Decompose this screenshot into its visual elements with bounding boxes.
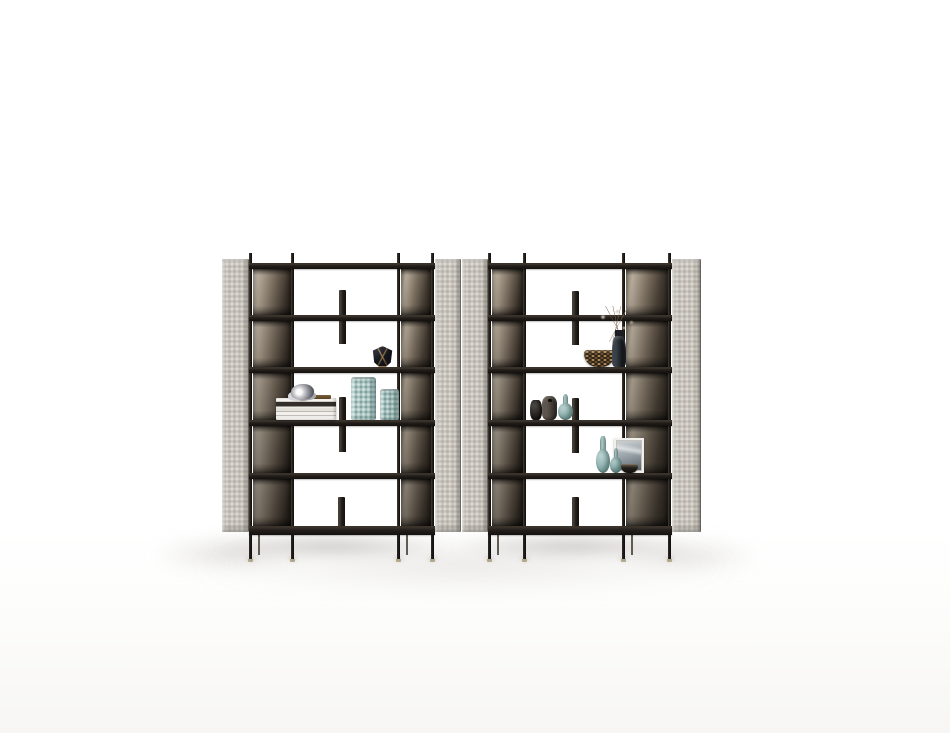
bookcase-left-post-4 [431, 253, 434, 535]
bookcase-right-back-leg-2 [631, 535, 633, 555]
bookcase-right-metal-back-left-row2 [492, 321, 523, 367]
decor-black-vase [530, 400, 542, 420]
bookcase-left-metal-back-left-row3 [253, 373, 291, 420]
bookcase-right-leg-3 [622, 535, 625, 559]
bookcase-left-shelf-2 [249, 315, 435, 321]
bookcase-left-leg-foot-1 [248, 559, 253, 562]
bookcase-right-post-1 [488, 253, 491, 535]
bookcase-left-metal-back-right-row1 [401, 269, 431, 315]
decor-teal-gourd-short [610, 448, 622, 473]
bookcase-right-metal-back-right-row4 [626, 426, 668, 473]
bookcase-left-post-2 [291, 253, 294, 535]
bookcase-right-metal-back-right-row5 [626, 479, 668, 526]
bookcase-right-metal-back-left-row5 [492, 479, 523, 526]
bookcase-left-metal-back-right-row5 [401, 479, 431, 526]
bookcase-right-post-2 [523, 253, 526, 535]
bookcase-left-metal-back-left-row4 [253, 426, 291, 473]
floor-shadow-4 [208, 534, 453, 558]
bookcase-left-metal-back-left-row1 [253, 269, 291, 315]
decor-chrome-ornament [291, 384, 314, 400]
bookcase-left-shelf-5 [249, 473, 435, 479]
bookcase-right-post-4 [668, 253, 671, 535]
bookcase-left-leg-4 [431, 535, 434, 559]
bookcase-right-side-panel-right [672, 259, 701, 532]
bookcase-left-leg-1 [249, 535, 252, 559]
bookcase-left-leg-foot-3 [396, 559, 401, 562]
bookcase-left-post-1 [249, 253, 252, 535]
bookcase-right-shelf-1 [488, 263, 672, 269]
bookcase-left-metal-back-right-row4 [401, 426, 431, 473]
bookcase-right-metal-back-left-row4 [492, 426, 523, 473]
bookcase-right-back-leg-1 [497, 535, 499, 555]
decor-stone-vessel [542, 396, 557, 420]
bookcase-left-leg-2 [291, 535, 294, 559]
decor-textured-vase-tall [351, 377, 376, 420]
bookcase-right-shelf-2 [488, 315, 672, 321]
bookcase-left-metal-back-right-row2 [401, 321, 431, 367]
floor-shadow-1 [190, 543, 740, 587]
bookcase-left-metal-back-right-row3 [401, 373, 431, 420]
bookcase-left-back-leg-2 [406, 535, 408, 555]
bookcase-right-side-panel-left [462, 259, 488, 532]
bookcase-right-leg-2 [523, 535, 526, 559]
bookcase-left-metal-back-left-row5 [253, 479, 291, 526]
bookcase-right-leg-foot-2 [522, 559, 527, 562]
decor-woven-bowl [584, 350, 615, 367]
bookcase-left-divider-fin-3 [338, 497, 345, 526]
bookcase-right-shelf-4 [488, 420, 672, 426]
bookcase-right-post-3 [622, 253, 625, 535]
bookcase-left-leg-foot-2 [290, 559, 295, 562]
bookcase-left-shelf-1 [249, 263, 435, 269]
floor-shadow-2 [150, 539, 310, 569]
bookcase-right-metal-back-left-row1 [492, 269, 523, 315]
bookcase-left-shelf-6 [249, 526, 435, 535]
bookcase-right-leg-foot-4 [667, 559, 672, 562]
product-stage [0, 0, 950, 733]
bookcase-left-leg-foot-4 [430, 559, 435, 562]
bookcase-right-shelf-3 [488, 367, 672, 373]
bookcase-right-metal-back-right-row2 [626, 321, 668, 367]
bookcase-right-shelf-5 [488, 473, 672, 479]
bookcase-left-post-3 [397, 253, 400, 535]
decor-teal-gourd-vase [558, 394, 573, 420]
bookcase-left-side-panel-right [435, 259, 461, 532]
decor-teal-gourd-tall [596, 436, 610, 473]
bookcase-right-leg-4 [668, 535, 671, 559]
bookcase-left-shelf-3 [249, 367, 435, 373]
bookcase-right-leg-foot-3 [621, 559, 626, 562]
bookcase-right-metal-back-left-row3 [492, 373, 523, 420]
bookcase-right-leg-1 [488, 535, 491, 559]
bookcase-right-metal-back-right-row3 [626, 373, 668, 420]
bookcase-right-metal-back-right-row1 [626, 269, 668, 315]
bookcase-left-leg-3 [397, 535, 400, 559]
bookcase-left-back-leg-1 [258, 535, 260, 555]
bookcase-left-shelf-4 [249, 420, 435, 426]
bookcase-left-metal-back-left-row2 [253, 321, 291, 367]
decor-faceted-vase [371, 346, 394, 367]
bookcase-left-side-panel-left [222, 259, 249, 532]
bookcase-right-leg-foot-1 [487, 559, 492, 562]
bookcase-right-divider-fin-3 [572, 497, 579, 526]
bookcase-right-shelf-6 [488, 526, 672, 535]
